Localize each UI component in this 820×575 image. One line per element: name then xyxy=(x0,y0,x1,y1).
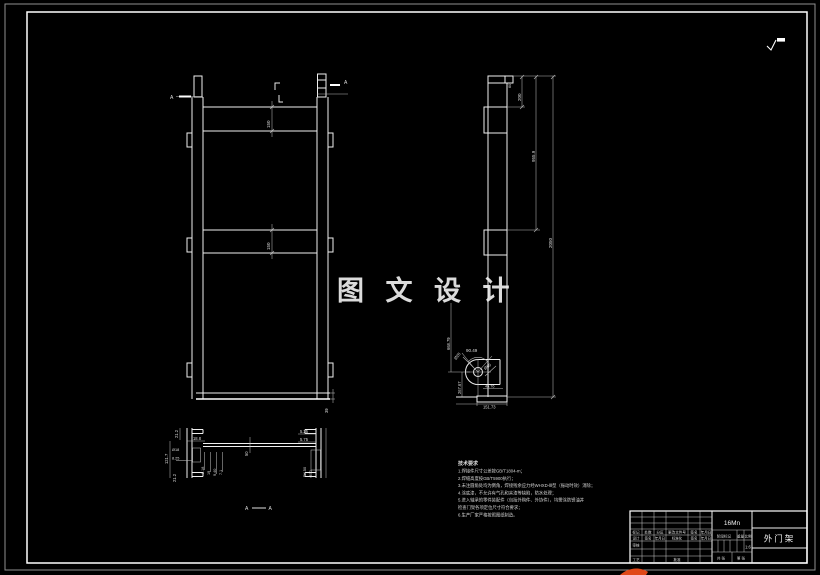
dim-crossbar-mid: 150 xyxy=(266,242,271,250)
dim-l6: 9.18 xyxy=(201,467,205,474)
section-title-a1: A xyxy=(245,506,249,512)
title-block: 标记 处数 分区 更改文件号 签名 年月日 设计 签名 年月日 标准化 签名 年… xyxy=(630,511,807,563)
note-line: 5.进入轴承的零件装配件（包括外购件、外协件），均需涂防锈油并 xyxy=(458,497,585,504)
dim-r4: Ø30 xyxy=(309,470,313,477)
section-label-right: A xyxy=(344,80,348,86)
dim-lower: 668.79 xyxy=(446,337,451,350)
note-line: 2.焊缝高度按GB/T5900执行； xyxy=(458,475,516,482)
dim-angle: 90.49 xyxy=(466,348,478,353)
section-tick-upper xyxy=(275,83,280,90)
note-line: 4.涂底漆，不允许有气孔和夹渣等缺陷，防水处理； xyxy=(458,489,556,496)
side-view: 90.49 Ø28 Ø60 45.76 668.79 267.67 151.73… xyxy=(446,75,556,410)
dim-upper: 955.9 xyxy=(531,150,536,162)
scale-value: 1:6 xyxy=(745,545,751,550)
dim-l2: 18.8 xyxy=(193,436,202,441)
dim-pin: Ø28 xyxy=(453,351,462,361)
dim-base-width: 151.73 xyxy=(483,405,496,410)
dim-top-small: 60 xyxy=(508,84,512,88)
label-mark: 标记 xyxy=(632,530,640,535)
label-stage: 阶段标记 xyxy=(717,534,732,539)
label-sign-2: 签名 xyxy=(645,536,652,541)
watermark-text: 图 文 设 计 xyxy=(337,275,517,306)
label-weight: 重量 xyxy=(737,534,744,539)
dim-r1: 5.25 xyxy=(300,429,309,434)
dim-crossbar-top: 150 xyxy=(266,120,271,128)
label-sheets-total: 共 张 xyxy=(717,556,726,561)
upper-block xyxy=(484,107,507,133)
foot-pad xyxy=(477,396,507,402)
left-rail-tip xyxy=(194,76,202,97)
part-name: 外门架 xyxy=(764,534,796,544)
label-approve: 批准 xyxy=(673,557,681,562)
label-process: 工艺 xyxy=(632,557,640,562)
dim-l9: 7.1 xyxy=(219,470,223,475)
label-date: 年月日 xyxy=(701,530,712,535)
label-date-3: 年月日 xyxy=(701,536,711,541)
label-date-2: 年月日 xyxy=(655,536,665,541)
right-rail-tip xyxy=(318,74,327,97)
label-sign-3: 签名 xyxy=(691,536,698,541)
dim-l8: 9.40 xyxy=(213,469,217,476)
section-title-a2: A xyxy=(269,506,273,512)
note-line: 6.生产厂家严格按照图纸制造。 xyxy=(458,511,517,518)
label-check: 审核 xyxy=(632,543,640,548)
label-design: 设计 xyxy=(633,536,640,541)
roughness-icon xyxy=(767,38,785,50)
label-sign: 签名 xyxy=(690,530,698,535)
logo-mark xyxy=(620,569,648,575)
dim-top: 200 xyxy=(517,93,522,101)
label-sheet-no: 第 张 xyxy=(737,556,746,561)
dim-l1: 21.2 xyxy=(174,429,179,438)
dim-l3: 121.7 xyxy=(164,453,169,464)
label-scale: 比例 xyxy=(745,534,752,539)
dim-base: 39 xyxy=(324,408,329,413)
label-zone: 分区 xyxy=(656,530,664,535)
note-line: 检查门架各项定位尺寸符合要求； xyxy=(458,504,522,511)
label-standard: 标准化 xyxy=(672,536,683,541)
notes-title: 技术要求 xyxy=(458,460,479,467)
dim-web: 50 xyxy=(244,451,249,456)
label-count: 处数 xyxy=(644,530,652,535)
dim-l4: Ø18 xyxy=(172,448,179,452)
material-value: 16Mn xyxy=(724,520,741,527)
dim-l7: 19 xyxy=(207,471,211,475)
section-label-left: A xyxy=(170,95,174,101)
top-plate xyxy=(488,76,513,83)
section-tick-lower xyxy=(279,95,283,102)
dim-r3: R4.50 xyxy=(303,467,307,477)
cad-drawing: 图 文 设 计 A xyxy=(0,0,820,575)
front-view: A A 150 150 39 xyxy=(170,74,348,413)
dim-l10: 21.2 xyxy=(172,473,177,482)
dim-l5: 8.25 xyxy=(172,457,179,461)
cad-drawing-canvas: 图 文 设 计 A xyxy=(0,0,820,575)
dim-total: 2050 xyxy=(548,237,553,248)
note-line: 3.未注圆角处均为倒角，焊接残余应力经WHXD-Ⅲ型（振动时效）消除； xyxy=(458,482,595,489)
technical-notes: 技术要求 1.焊接件尺寸公差按GB/T1804-m； 2.焊缝高度按GB/T59… xyxy=(458,460,595,518)
dim-foot-offset: 45.76 xyxy=(485,385,495,389)
dim-bottom-offset: 267.67 xyxy=(457,381,462,394)
section-a-a: 50 21.2 18.8 121.7 Ø18 8.25 9.18 19 9.40… xyxy=(164,428,326,512)
dim-r2: 5.75 xyxy=(300,437,309,442)
note-line: 1.焊接件尺寸公差按GB/T1804-m； xyxy=(458,468,525,475)
lower-block xyxy=(484,230,507,255)
label-doc-no: 更改文件号 xyxy=(668,530,686,535)
